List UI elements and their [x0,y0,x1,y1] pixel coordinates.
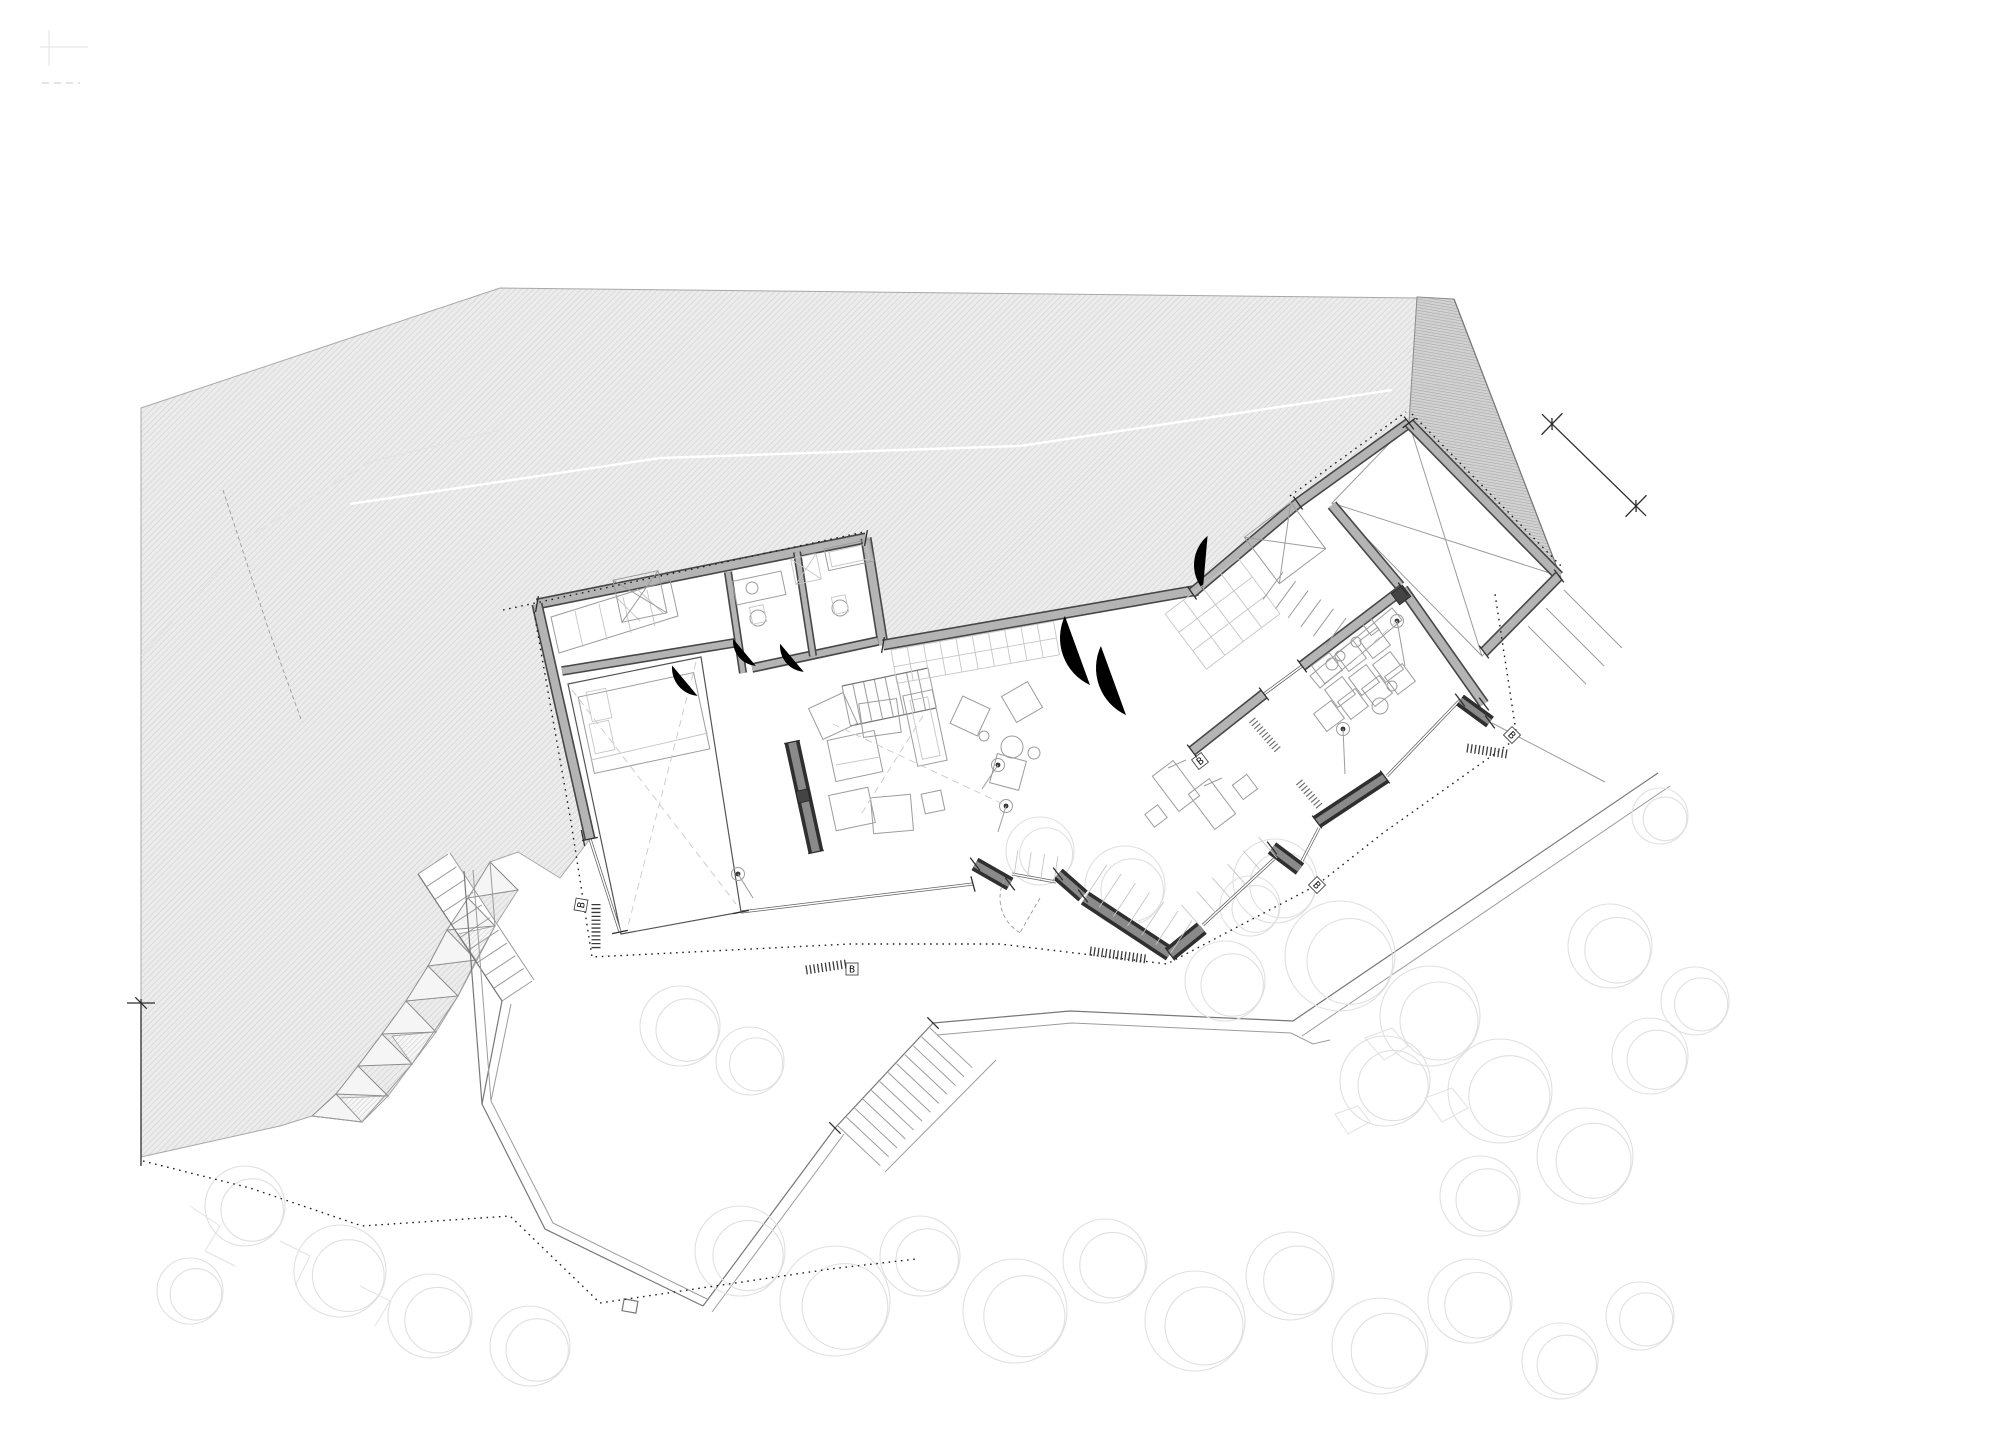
tree-canopy [1145,1271,1245,1371]
section-marker: B [846,963,858,976]
tree-canopy [1568,904,1652,988]
wall-dining-nw-core [1302,589,1403,666]
tree-inner [1627,1030,1686,1089]
tree-canopy [640,986,720,1066]
glass-dining-w-pane [1264,666,1302,694]
tree-inner [1620,1293,1673,1346]
tree-canopy [1428,1259,1512,1343]
garden-stair-treads-tread [871,1090,913,1130]
deck-joints-tread [1041,854,1045,880]
floor-lamp-stem [1397,621,1405,666]
tree-inner [1456,1169,1518,1231]
section-hatch-band [806,964,846,970]
path-stub [1291,1033,1330,1044]
deck-lounger [1152,761,1199,812]
hall-stair-treads-tread [917,670,925,709]
tree-inner [1165,1287,1243,1365]
stool [1028,747,1040,759]
tree-canopy [205,1166,285,1246]
garden-stair-treads-tread [922,1037,964,1077]
garden-stair-treads-tread [888,1073,930,1113]
wall-terrace-parapet-core [1192,694,1264,751]
tree-canopy [388,1274,472,1358]
door-swing-leaf [1126,668,1148,715]
hall-stair-treads-tread [885,677,893,716]
tree-canopy [695,1206,785,1296]
floor-lamp-stem [998,806,1006,832]
hall-stair-treads-tread [864,682,872,721]
section-marker: B [1192,753,1209,770]
section-marker: B [574,898,588,912]
section-hatch-band [1090,951,1146,959]
rock [1425,1088,1468,1122]
tree-canopy [1537,1108,1633,1204]
door-swing [1060,616,1090,685]
wardrobe-door [637,589,663,613]
tree-inner [1675,978,1728,1031]
bath-counter [732,571,786,605]
tree-inner [1264,1246,1333,1315]
garden-stair-edge [885,1060,996,1172]
tree-canopy [1448,1039,1552,1143]
glass-living-south-pane [741,884,973,912]
tree-inner [984,1276,1065,1357]
stool [979,731,989,741]
tree-canopy [1285,901,1395,1011]
section-marker: B [1503,727,1520,744]
lower-path2 [712,1134,844,1312]
floor-lamp-stem [738,874,753,898]
garden-stair-treads-tread [880,1081,922,1121]
deck-lounger [1188,779,1235,830]
tree-inner [1080,1232,1146,1298]
fireplace-flue [796,789,810,803]
sofa [827,730,883,781]
site-boundary-dotted [143,1161,916,1303]
hill-path [482,1001,502,1104]
parking-line [1546,608,1604,666]
armchair [809,693,858,740]
bedroom-room [568,657,741,934]
tree-inner [312,1240,384,1312]
section-marker-text: B [849,965,855,976]
hall-stair-treads-tread [907,673,915,712]
deck-joints-tread [1014,850,1018,876]
floor-lamp-stem [982,765,998,789]
door-swing [733,639,756,666]
tree-inner [713,1220,783,1290]
chair [950,696,990,736]
section-hatch-band [1467,748,1507,754]
tree-inner [1556,1123,1631,1198]
tree-canopy [1246,1232,1334,1320]
garden-stair-treads-tread [838,1126,880,1166]
grate-band [1252,720,1278,750]
lounger-back [1168,760,1186,768]
bath-sink [746,582,758,594]
deck-joints-tread [1228,864,1247,885]
glass-dining-se-pane [1387,700,1460,776]
hall-stair-rail [842,668,928,686]
tree-inner [1201,954,1263,1016]
deck-joints-tread [1113,883,1135,916]
floor-plan-sheet: BBBBB [40,16,2000,1430]
sofa-back [836,757,880,765]
lounger-back [1204,778,1222,786]
dining-round [1326,658,1338,670]
tree-canopy [294,1225,386,1317]
paver-grid-entry-h [1207,614,1280,669]
tree-inner [1351,1313,1426,1388]
ground-scribble [360,1286,390,1326]
tree-canopy [1063,1219,1147,1303]
tree-inner [1469,1056,1550,1137]
hall-stair-rail [850,708,936,726]
layer-terrain [141,288,1561,1157]
tree-canopy [1340,1036,1430,1126]
retaining-wall2 [473,870,707,1299]
parking-line [1564,590,1622,648]
glass-deck-2-pane [1203,859,1274,925]
tree-inner [1400,982,1478,1060]
side-table [921,790,945,814]
tree-canopy [1440,1156,1520,1236]
wardrobe-divider [599,604,607,640]
hall-stair-treads-tread [896,675,904,714]
garden-stair-treads-tread [863,1099,905,1139]
garden-path [933,1011,1293,1023]
entry-steps-tread [1276,581,1296,608]
partition-bath2-core [797,552,813,656]
tree-inner [170,1269,221,1320]
armchair [871,794,914,833]
hill-path2 [491,1004,511,1101]
deck-table [1232,774,1257,799]
armchair [829,787,876,831]
tree-inner [1537,1335,1596,1394]
garden-stair-treads-tread [913,1046,955,1086]
grate-band [1299,782,1321,808]
tree-inner [896,1229,958,1291]
tree-inner [1445,1272,1511,1338]
door-swing [1096,646,1126,715]
garden-path2 [937,1023,1291,1035]
deck-joints-tread [1027,852,1031,878]
wc-tank [831,595,848,615]
tree-canopy [1332,1298,1428,1394]
entry-steps-tread [1263,572,1283,599]
chair [1002,682,1043,723]
tree-inner [1358,1050,1428,1120]
paver-grid-entry-h [1193,595,1266,650]
floor-plan-drawing: BBBBB [40,16,2000,1430]
dimension-driveway-line [1542,414,1646,516]
entry-steps-tread [1301,600,1321,627]
path-marker [622,1299,638,1313]
entry-steps-tread [1313,609,1333,636]
deck-table [1145,805,1167,827]
wc-tank [749,605,766,625]
upper-road [1293,773,1658,1021]
tree-canopy [963,1259,1067,1363]
tree-inner [656,999,718,1061]
kitchen-counter-1-core [1317,777,1385,822]
entry-steps-tread [1288,590,1308,617]
deck-joints-tread [1197,891,1216,912]
wardrobe-divider [647,590,655,626]
garden-stair-treads-tread [855,1108,897,1148]
daybed [903,690,947,767]
deck-joints-tread [1243,851,1262,872]
dining-chair [1373,652,1404,683]
dining-chair [1362,676,1393,707]
tree-canopy [780,1246,890,1356]
garden-stair-treads-tread [905,1055,947,1095]
glass-deck-3-pane [1302,828,1319,861]
hall-stair-treads-tread [874,679,882,718]
deck-joints-tread [1156,911,1178,944]
parking-line [1528,626,1586,684]
tree-canopy [880,1216,960,1296]
garden-stair-rail [835,1023,933,1128]
coffee-table [1001,736,1023,758]
shower-box [791,554,822,585]
tree-canopy [490,1306,570,1386]
ground-scribble [190,1206,235,1266]
rock [1335,1106,1370,1134]
door-swing-dashed-leaf [1020,898,1040,933]
tree-canopy [1185,941,1265,1021]
tree-inner [730,1038,783,1091]
upper-road2 [1302,786,1670,1036]
tree-inner [1585,917,1651,983]
garden-stair-treads-tread [846,1117,888,1157]
tree-inner [1643,797,1687,841]
section-marker: B [1308,877,1325,894]
tree-inner [506,1319,568,1381]
wardrobe-divider [575,611,583,647]
garden-stair-treads-tread [897,1064,939,1104]
tree-inner [405,1287,471,1353]
tree-inner [802,1264,888,1350]
